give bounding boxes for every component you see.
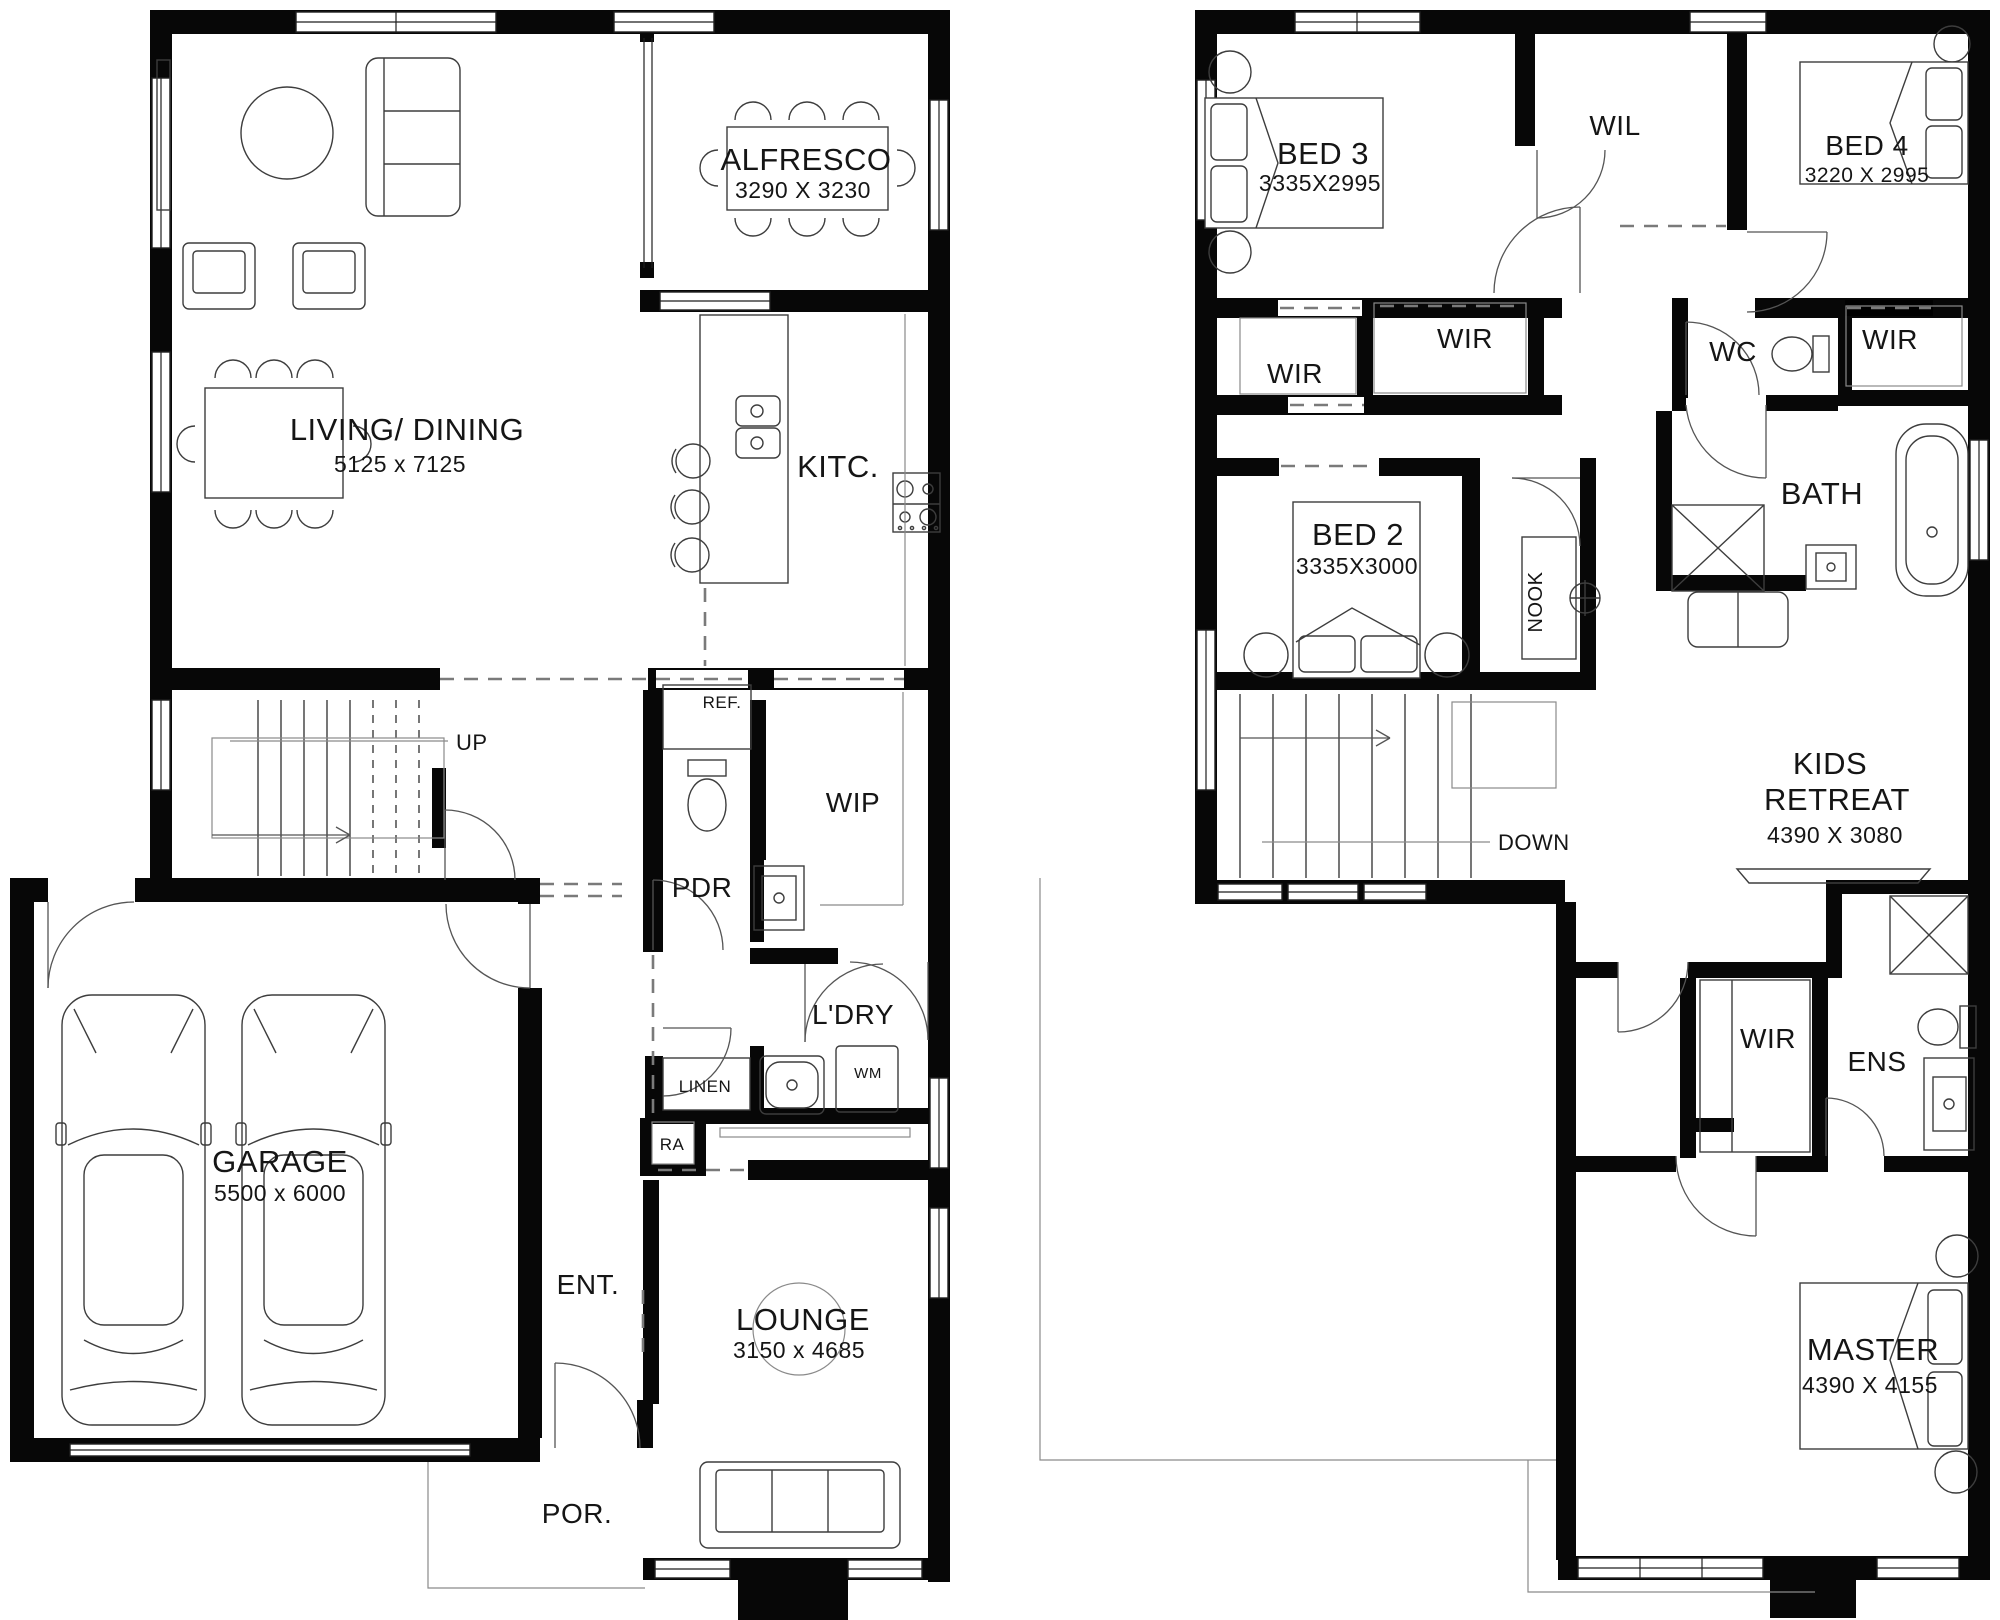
living-sofa xyxy=(366,58,460,216)
lounge-sofa xyxy=(700,1462,900,1548)
dims-bed3: 3335X2995 xyxy=(1259,170,1381,196)
living-armchair xyxy=(183,243,255,309)
first-openings xyxy=(1278,226,1933,466)
label-wc: WC xyxy=(1709,336,1757,367)
dims-master: 4390 X 4155 xyxy=(1802,1372,1938,1398)
pdr-basin-icon xyxy=(754,866,804,930)
bathtub-icon xyxy=(1896,424,1968,596)
label-porch: POR. xyxy=(542,1498,612,1529)
dims-lounge: 3150 x 4685 xyxy=(733,1337,865,1363)
kitchen-island xyxy=(700,315,788,583)
ground-walls xyxy=(10,10,950,1620)
label-living-dining: LIVING/ DINING xyxy=(290,412,524,447)
roof-outline xyxy=(1040,878,1815,1592)
laundry-shelf xyxy=(720,1128,910,1137)
dims-garage: 5500 x 6000 xyxy=(214,1180,346,1206)
label-stairs-up: UP xyxy=(456,730,488,755)
kids-sofa xyxy=(1688,592,1788,647)
dims-kids-retreat: 4390 X 3080 xyxy=(1767,822,1903,848)
wc-toilet-icon xyxy=(1772,336,1829,372)
garage-cars xyxy=(56,995,391,1425)
label-bath: BATH xyxy=(1781,476,1863,511)
label-lounge: LOUNGE xyxy=(736,1302,870,1337)
label-nook: NOOK xyxy=(1525,571,1547,632)
label-wil: WIL xyxy=(1589,110,1640,141)
label-wm: WM xyxy=(854,1065,882,1082)
kitchen-stools xyxy=(671,444,710,572)
label-kids-retreat-2: RETREAT xyxy=(1764,782,1910,817)
dims-bed2: 3335X3000 xyxy=(1296,553,1418,579)
dims-alfresco: 3290 X 3230 xyxy=(735,177,871,203)
label-wir-hall: WIR xyxy=(1437,323,1493,354)
first-floor-plan: BED 3 3335X2995 WIL BED 4 3220 X 2995 WI… xyxy=(1040,10,1990,1618)
bath-vanity-icon xyxy=(1806,545,1856,589)
living-round-table xyxy=(241,87,333,179)
label-ens: ENS xyxy=(1847,1046,1906,1077)
label-ra: RA xyxy=(660,1135,685,1154)
label-fridge: REF. xyxy=(703,693,742,712)
floor-plan-drawing: ALFRESCO 3290 X 3230 LIVING/ DINING 5125… xyxy=(0,0,2000,1620)
label-wip: WIP xyxy=(826,787,880,818)
label-kitchen: KITC. xyxy=(797,449,879,484)
label-alfresco: ALFRESCO xyxy=(720,142,891,177)
label-bed2: BED 2 xyxy=(1312,517,1404,552)
living-armchair xyxy=(293,243,365,309)
label-bed3: BED 3 xyxy=(1277,136,1369,171)
label-master: MASTER xyxy=(1807,1332,1939,1367)
label-kids-retreat-1: KIDS xyxy=(1793,746,1867,781)
ens-shower-icon xyxy=(1890,896,1968,974)
ens-toilet-icon xyxy=(1918,1006,1976,1048)
stairs-up xyxy=(212,700,448,876)
label-wir-bed4: WIR xyxy=(1862,324,1918,355)
label-bed4: BED 4 xyxy=(1825,130,1908,161)
pdr-toilet-icon xyxy=(688,760,726,831)
label-pdr: PDR xyxy=(672,872,733,903)
label-wir-bed3: WIR xyxy=(1267,358,1323,389)
floor-plan-page: ALFRESCO 3290 X 3230 LIVING/ DINING 5125… xyxy=(0,0,2000,1620)
ground-floor-plan: ALFRESCO 3290 X 3230 LIVING/ DINING 5125… xyxy=(10,10,950,1620)
label-laundry: L'DRY xyxy=(812,999,894,1030)
label-wir-master: WIR xyxy=(1740,1023,1796,1054)
label-garage: GARAGE xyxy=(212,1144,348,1179)
ground-openings xyxy=(440,588,904,1362)
dims-living-dining: 5125 x 7125 xyxy=(334,451,466,477)
label-linen: LINEN xyxy=(679,1077,732,1096)
ens-vanity-icon xyxy=(1924,1058,1974,1150)
porch-outline xyxy=(428,1462,645,1588)
laundry-tub-icon xyxy=(760,1056,824,1114)
label-stairs-down: DOWN xyxy=(1498,830,1570,855)
dims-bed4: 3220 X 2995 xyxy=(1805,164,1930,187)
label-entry: ENT. xyxy=(557,1269,620,1300)
